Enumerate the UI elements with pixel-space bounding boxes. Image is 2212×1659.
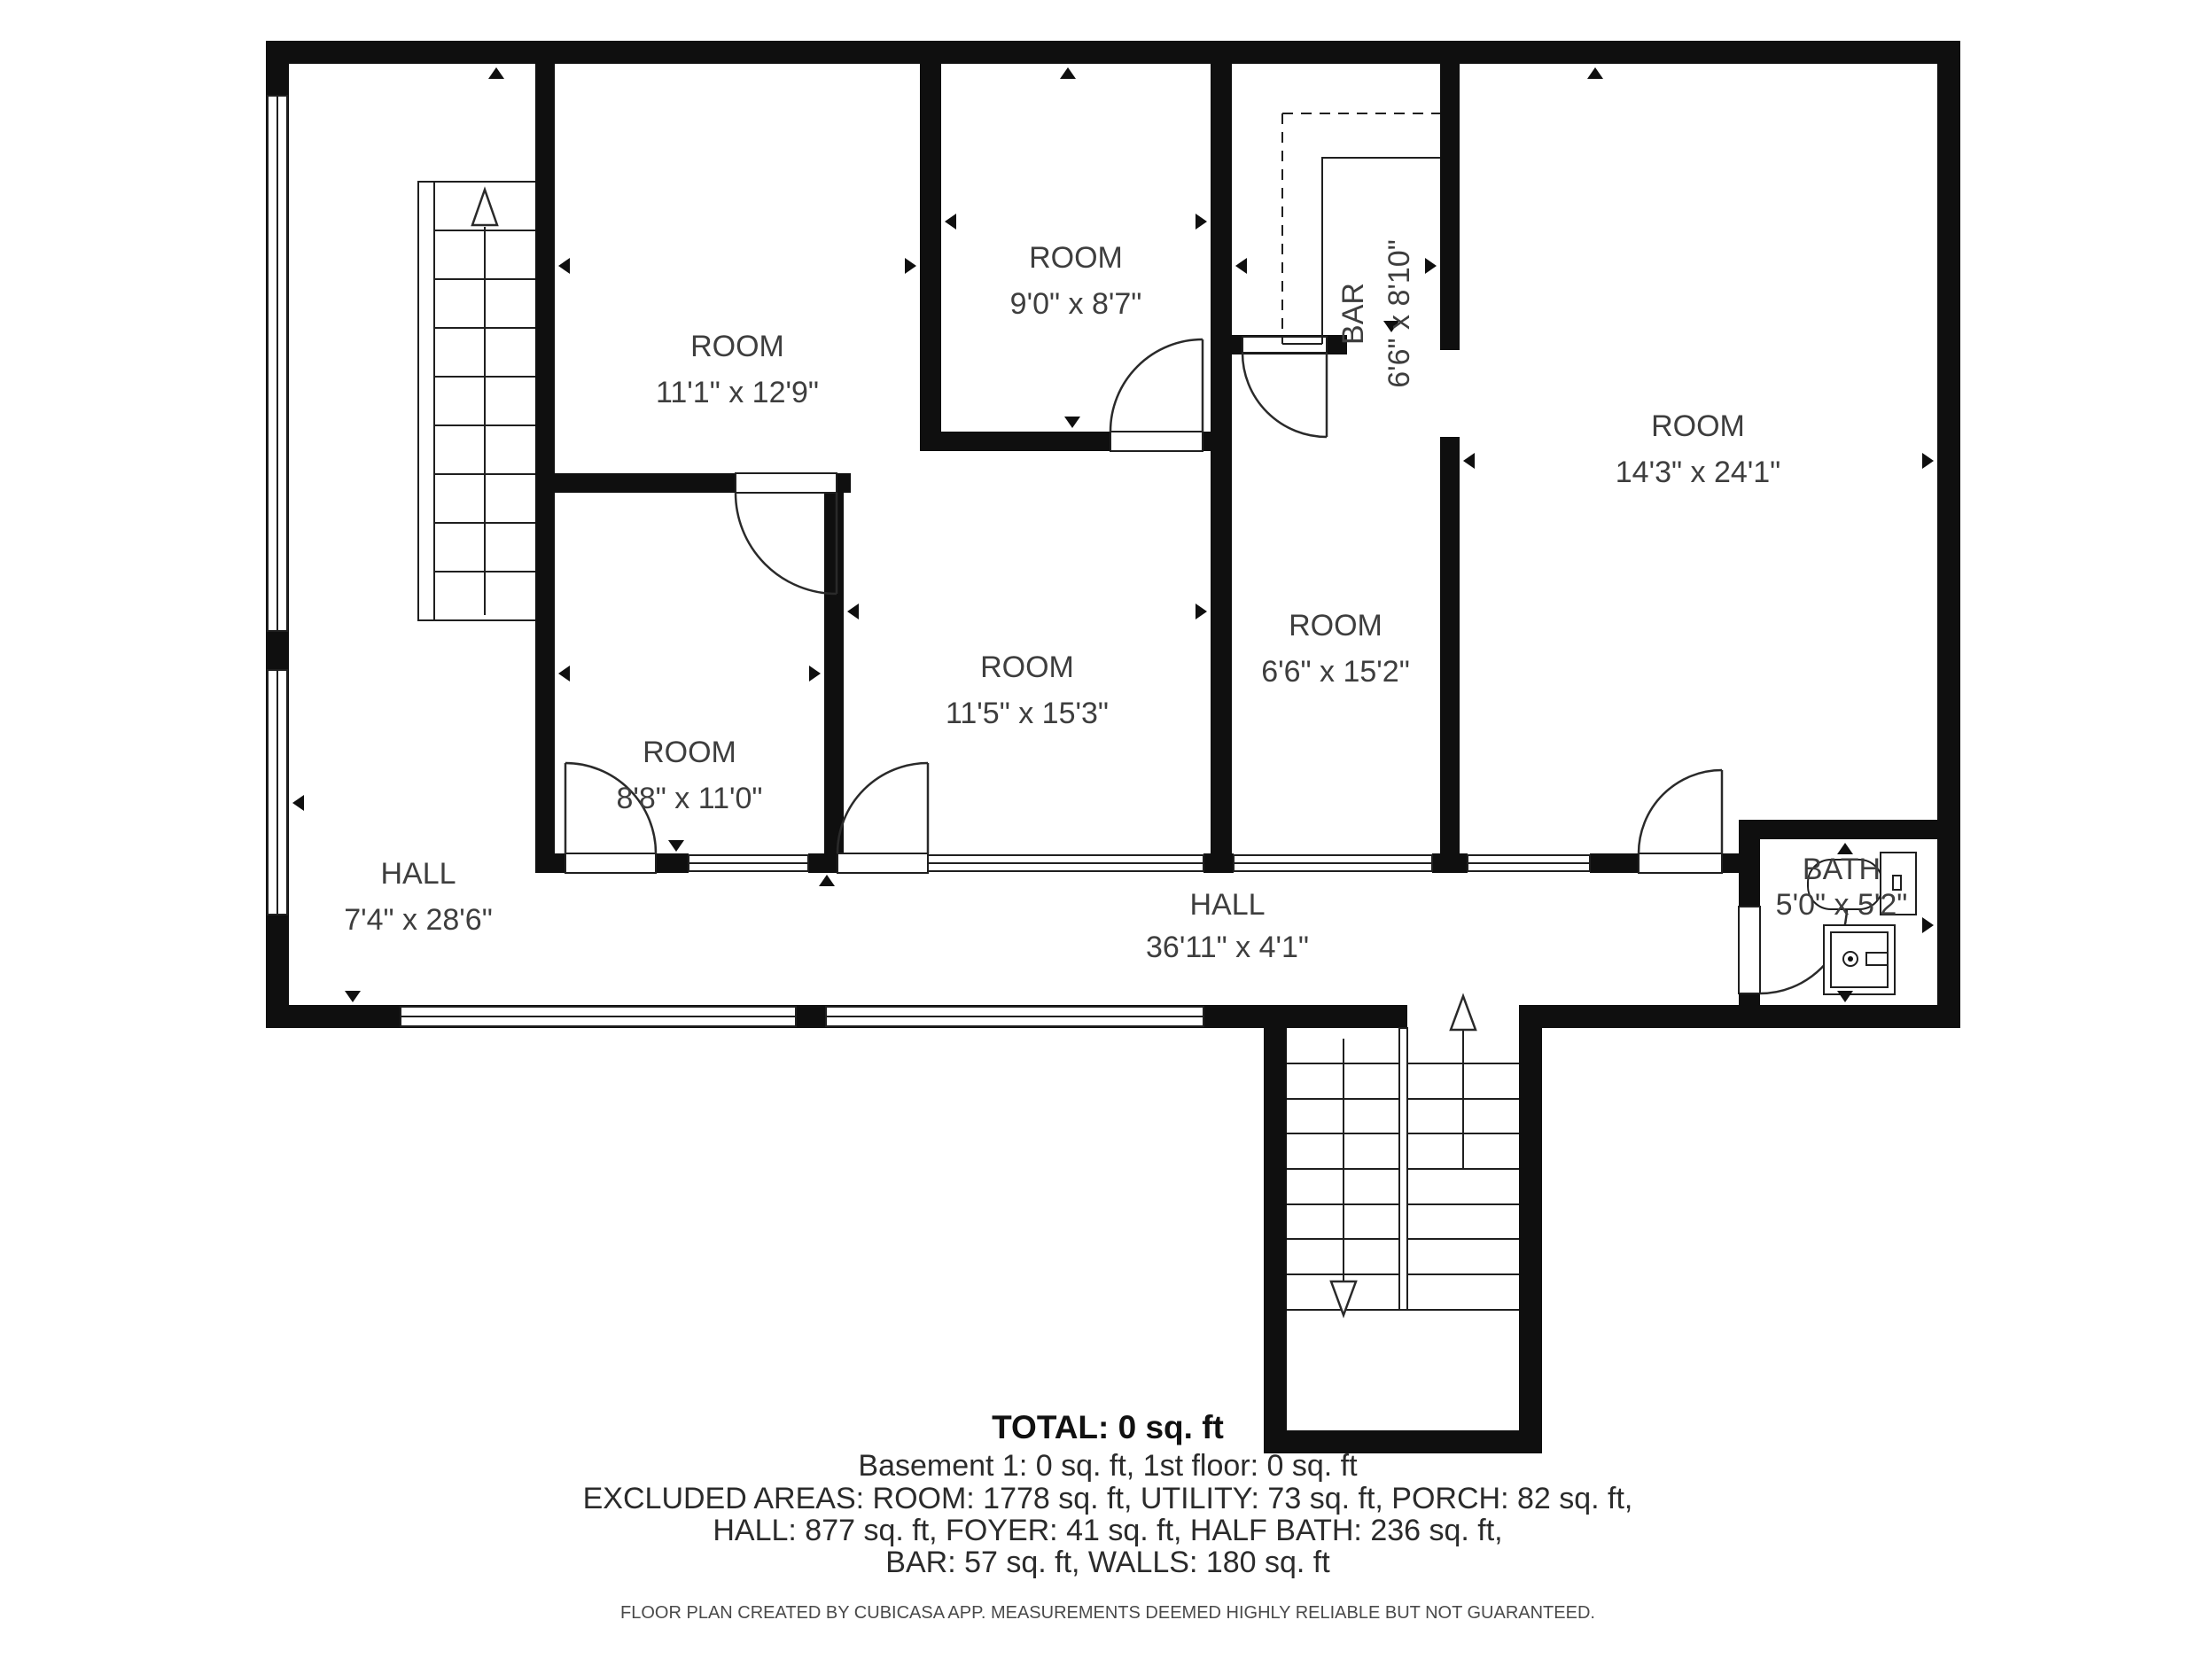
sink-icon — [1824, 925, 1895, 994]
stairs-up-arrow-icon — [472, 190, 497, 225]
svg-text:HALL: HALL — [380, 857, 456, 891]
hall-label-vertical: HALL 7'4" x 28'6" — [344, 857, 493, 937]
summary-line-4: HALL: 877 sq. ft, FOYER: 41 sq. ft, HALF… — [713, 1514, 1502, 1547]
summary-line-2: Basement 1: 0 sq. ft, 1st floor: 0 sq. f… — [858, 1449, 1358, 1483]
door-room-14-3-hall — [1639, 770, 1722, 873]
room-label-14-3: ROOM 14'3" x 24'1" — [1616, 409, 1780, 489]
stairs-lower — [1287, 996, 1519, 1315]
window-hall-2 — [928, 855, 1203, 871]
svg-text:ROOM: ROOM — [643, 736, 736, 769]
room-label-11-5: ROOM 11'5" x 15'3" — [946, 650, 1109, 730]
door-room-8-8-hall — [565, 763, 656, 873]
room-label-8-8: ROOM 8'8" x 11'0" — [616, 736, 762, 815]
exterior-walls — [266, 41, 1960, 1028]
window-bottom-1 — [401, 1007, 796, 1026]
svg-text:ROOM: ROOM — [690, 330, 784, 363]
window-bottom-2 — [826, 1007, 1203, 1026]
svg-text:ROOM: ROOM — [1651, 409, 1745, 443]
svg-text:HALL: HALL — [1189, 888, 1265, 922]
svg-text:8'8" x 11'0": 8'8" x 11'0" — [616, 782, 762, 815]
summary-line-3: EXCLUDED AREAS: ROOM: 1778 sq. ft, UTILI… — [583, 1482, 1633, 1515]
window-left-2 — [268, 670, 287, 915]
window-left-1 — [268, 96, 287, 631]
stairs-upper — [418, 182, 535, 620]
svg-text:7'4" x 28'6": 7'4" x 28'6" — [344, 903, 493, 937]
room-label-11-1: ROOM 11'1" x 12'9" — [656, 330, 819, 409]
svg-text:36'11" x 4'1": 36'11" x 4'1" — [1146, 931, 1309, 964]
summary-total: TOTAL: 0 sq. ft — [992, 1409, 1224, 1445]
svg-text:5'0" x 5'2": 5'0" x 5'2" — [1776, 888, 1908, 922]
room-label-9-0: ROOM 9'0" x 8'7" — [1010, 241, 1142, 321]
door-room-11-1-room-8-8 — [736, 473, 837, 594]
svg-text:11'5" x 15'3": 11'5" x 15'3" — [946, 697, 1109, 730]
svg-text:ROOM: ROOM — [1029, 241, 1123, 275]
svg-text:BATH: BATH — [1803, 853, 1881, 886]
svg-text:BAR: BAR — [1336, 283, 1370, 345]
svg-text:14'3" x 24'1": 14'3" x 24'1" — [1616, 456, 1780, 489]
room-label-6-6: ROOM 6'6" x 15'2" — [1261, 609, 1410, 689]
hall-label-horizontal: HALL 36'11" x 4'1" — [1146, 888, 1309, 964]
door-bar-room-6-6 — [1242, 337, 1327, 437]
window-hall-4 — [1468, 855, 1590, 871]
svg-text:ROOM: ROOM — [980, 650, 1074, 684]
floorplan-page: ROOM 11'1" x 12'9" ROOM 9'0" x 8'7" BAR … — [0, 0, 2212, 1659]
svg-text:ROOM: ROOM — [1289, 609, 1382, 643]
svg-text:9'0" x 8'7": 9'0" x 8'7" — [1010, 287, 1142, 321]
svg-text:6'6" x 15'2": 6'6" x 15'2" — [1261, 655, 1410, 689]
floorplan-svg: ROOM 11'1" x 12'9" ROOM 9'0" x 8'7" BAR … — [0, 0, 2212, 1659]
door-room-11-5-hall — [837, 763, 928, 873]
footer-disclaimer: FLOOR PLAN CREATED BY CUBICASA APP. MEAS… — [620, 1603, 1595, 1623]
bar-label: BAR 6'6" x 8'10" — [1336, 239, 1416, 388]
window-hall-3 — [1234, 855, 1432, 871]
svg-text:11'1" x 12'9": 11'1" x 12'9" — [656, 376, 819, 409]
stairs-up-arrow2-icon — [1451, 996, 1476, 1030]
door-room-9-0-room-11-5 — [1110, 339, 1203, 451]
svg-text:6'6" x 8'10": 6'6" x 8'10" — [1382, 239, 1416, 388]
interior-walls — [535, 41, 1937, 1453]
summary-line-5: BAR: 57 sq. ft, WALLS: 180 sq. ft — [885, 1546, 1330, 1579]
window-hall-1 — [689, 855, 808, 871]
